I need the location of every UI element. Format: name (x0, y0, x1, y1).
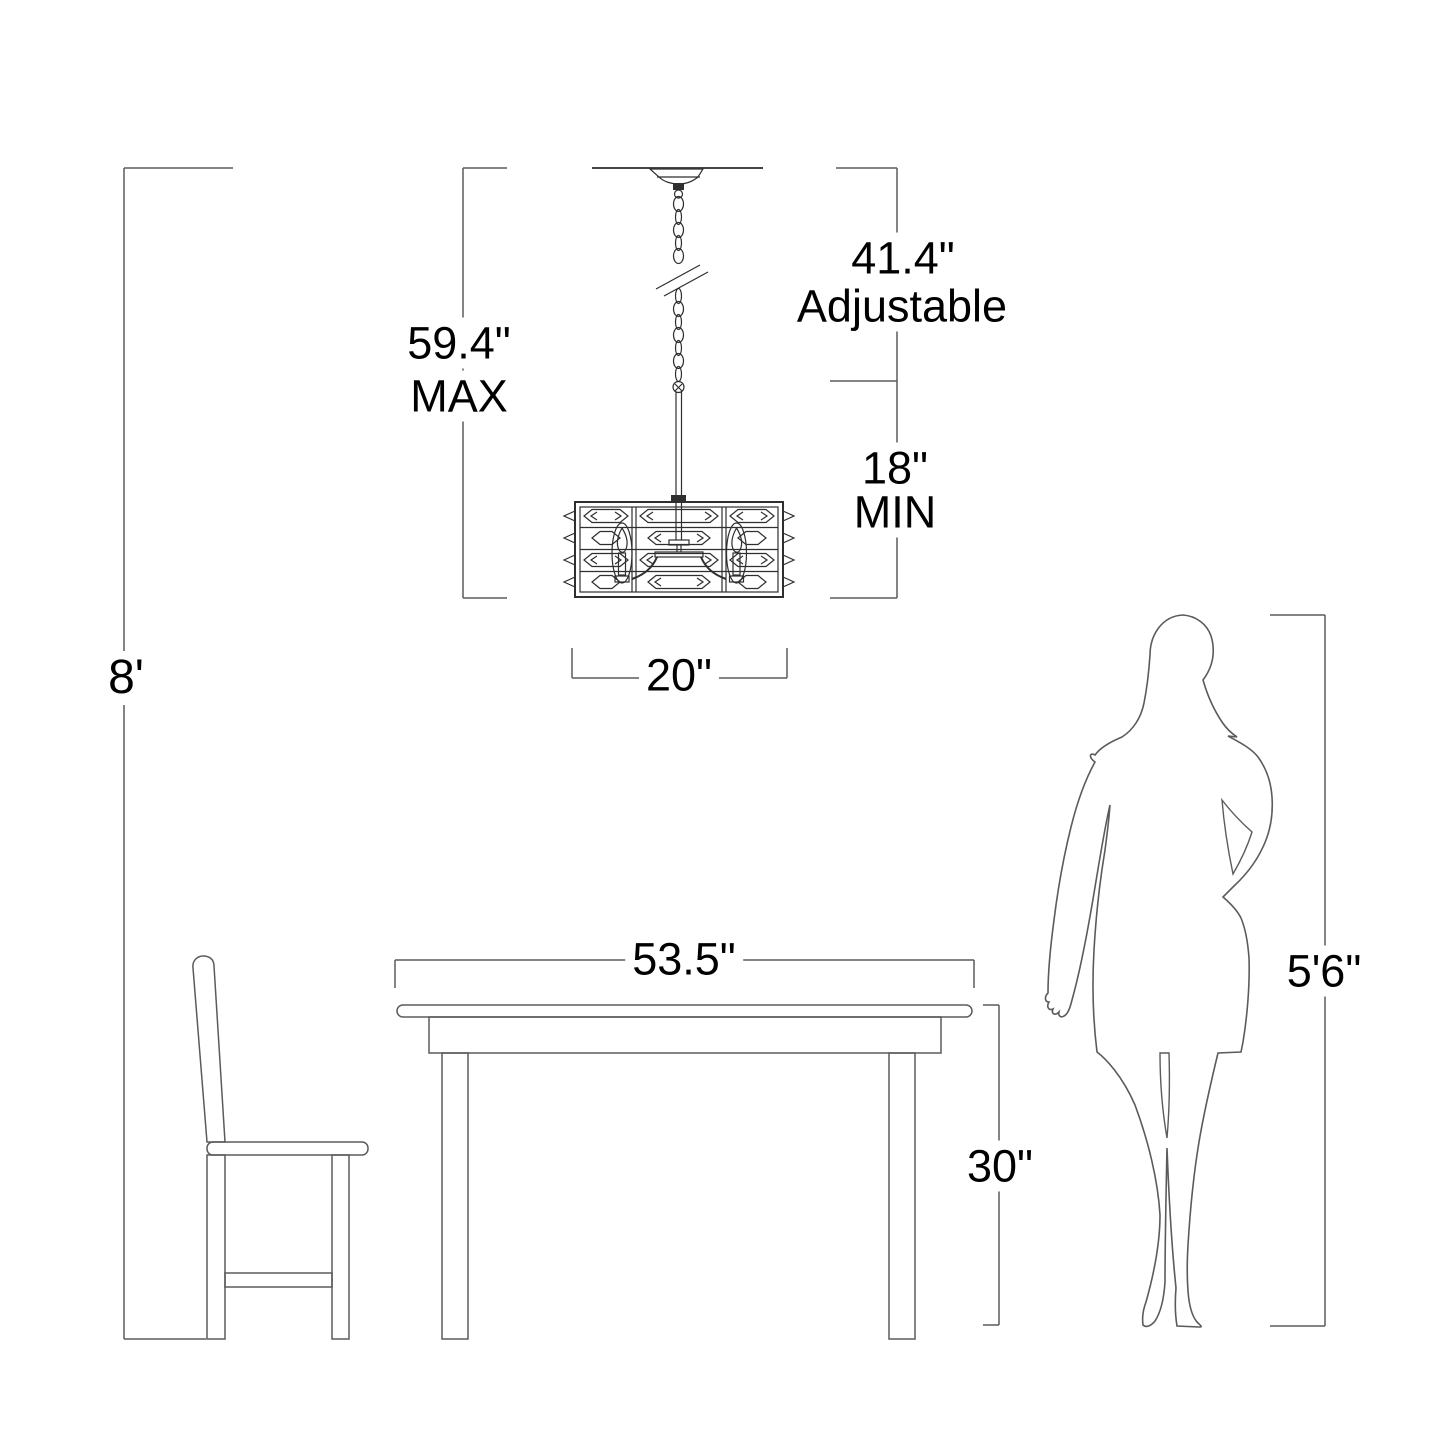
label-adjustable-value: 41.4" (844, 233, 962, 284)
label-min-qualifier: MIN (847, 487, 944, 538)
dimension-ceiling-height-8ft (124, 168, 233, 1339)
diagram-stage: 8' 59.4" MAX 41.4" Adjustable 18" MIN 20… (0, 0, 1445, 1445)
person-silhouette (1045, 615, 1272, 1327)
label-fixture-width: 20" (639, 650, 719, 701)
label-max-qualifier: MAX (403, 371, 515, 422)
label-ceiling-height: 8' (101, 651, 151, 705)
label-table-width: 53.5" (625, 934, 743, 985)
label-table-height: 30" (960, 1141, 1040, 1192)
hanging-chain (656, 197, 708, 393)
inner-stem-and-arms (632, 503, 726, 579)
diagram-canvas (0, 0, 1445, 1445)
label-adjustable-qualifier: Adjustable (790, 281, 1014, 332)
crystal-chandelier-fixture (564, 502, 794, 597)
label-max-value: 59.4" (400, 318, 518, 369)
label-person-height: 5'6" (1280, 946, 1369, 997)
canopy (650, 169, 703, 198)
hang-rod (671, 392, 686, 503)
side-chair (193, 956, 368, 1339)
dining-table (397, 1005, 972, 1339)
chain-break-mark (656, 265, 708, 296)
